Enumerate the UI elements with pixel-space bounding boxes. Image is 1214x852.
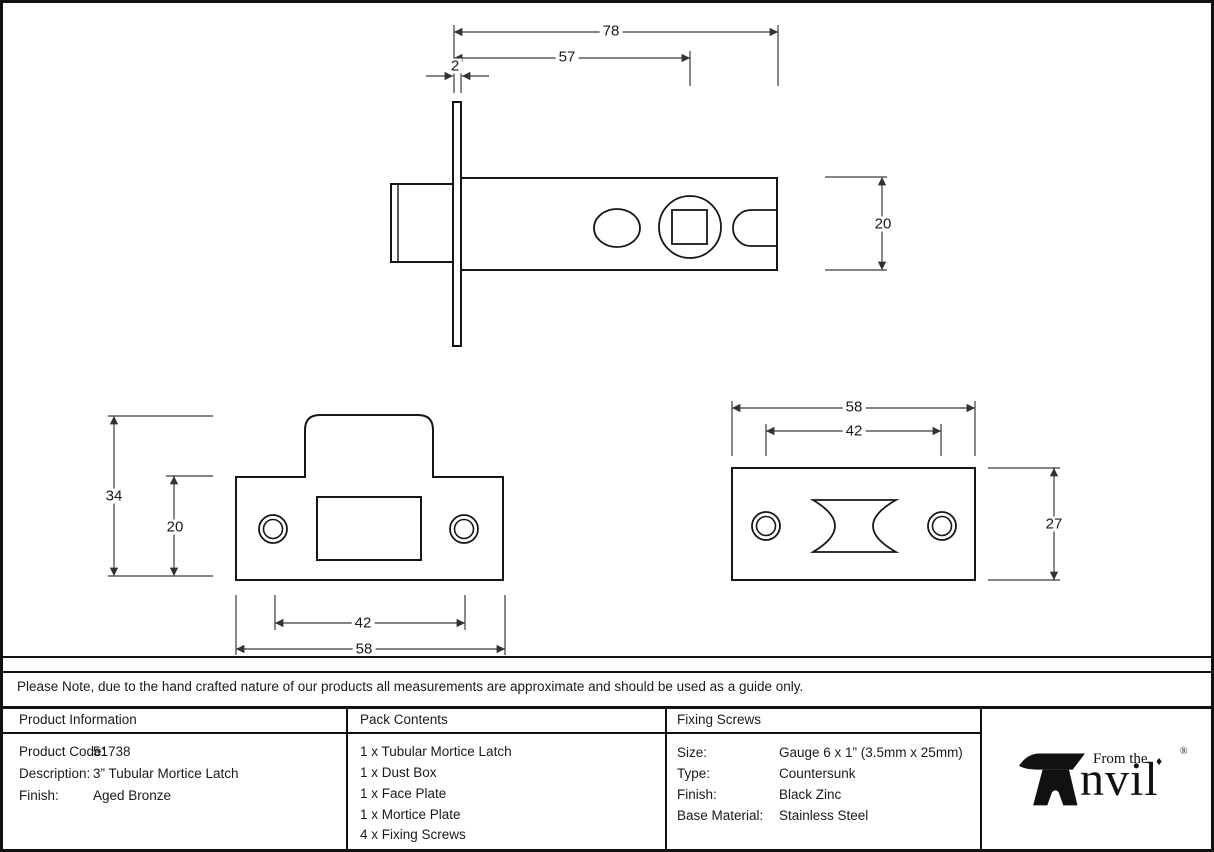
drawing-area-bottom-border xyxy=(3,656,1211,658)
dim-label-faceplate-hole-centres: 42 xyxy=(352,616,375,631)
dim-label-morticeplate-height: 27 xyxy=(1043,517,1066,532)
anvil-icon xyxy=(1019,749,1085,809)
screw-base-material-value: Stainless Steel xyxy=(779,808,868,823)
dim-label-morticeplate-width: 58 xyxy=(843,400,866,415)
dim-label-faceplate-plate-height: 20 xyxy=(164,520,187,535)
face-plate-view-drawing xyxy=(236,415,503,580)
pack-contents-item: 1 x Tubular Mortice Latch xyxy=(360,744,512,759)
pack-contents-item: 1 x Mortice Plate xyxy=(360,807,461,822)
dim-label-morticeplate-hole-centres: 42 xyxy=(843,424,866,439)
dim-label-overall-length: 78 xyxy=(600,24,623,39)
fixing-screws-title: Fixing Screws xyxy=(677,712,761,727)
dim-label-faceplate-width: 58 xyxy=(353,642,376,657)
finish-value: Aged Bronze xyxy=(93,788,171,803)
finish-label: Finish: xyxy=(19,788,59,803)
table-divider-2 xyxy=(665,706,667,852)
pack-contents-title: Pack Contents xyxy=(360,712,448,727)
screw-size-value: Gauge 6 x 1” (3.5mm x 25mm) xyxy=(779,745,963,760)
screw-type-label: Type: xyxy=(677,766,710,781)
measurement-note: Please Note, due to the hand crafted nat… xyxy=(17,679,803,694)
from-the-anvil-logo: From the nvil ♦ ® xyxy=(983,709,1209,852)
pack-contents-item: 4 x Fixing Screws xyxy=(360,827,466,842)
pack-contents-item: 1 x Face Plate xyxy=(360,786,446,801)
screw-type-value: Countersunk xyxy=(779,766,856,781)
screw-finish-value: Black Zinc xyxy=(779,787,841,802)
mortice-plate-view-drawing xyxy=(732,468,975,580)
screw-base-material-label: Base Material: xyxy=(677,808,763,823)
table-header-underline xyxy=(3,732,982,734)
screw-size-label: Size: xyxy=(677,745,707,760)
pack-contents-item: 1 x Dust Box xyxy=(360,765,437,780)
registered-trademark-icon: ® xyxy=(1180,747,1188,757)
description-label: Description: xyxy=(19,766,90,781)
technical-drawing-sheet: 78 57 2 20 34 20 42 58 58 42 27 Please N… xyxy=(0,0,1214,852)
table-divider-1 xyxy=(346,706,348,852)
logo-diamond-icon: ♦ xyxy=(1156,755,1162,767)
dim-label-latch-height: 20 xyxy=(872,217,895,232)
dim-label-backset: 57 xyxy=(556,50,579,65)
latch-side-view-drawing xyxy=(391,102,777,346)
logo-brand-text: nvil xyxy=(1080,756,1159,804)
note-box-top-border xyxy=(3,671,1211,673)
dim-label-faceplate-overall-height: 34 xyxy=(103,489,126,504)
mortice-plate-view-dimensions xyxy=(732,401,1060,580)
description-value: 3” Tubular Mortice Latch xyxy=(93,766,239,781)
drawing-canvas xyxy=(3,3,1214,658)
product-information-title: Product Information xyxy=(19,712,137,727)
latch-side-view-dimensions xyxy=(426,25,887,270)
table-divider-3 xyxy=(980,706,982,852)
product-code-value: 51738 xyxy=(93,744,131,759)
dim-label-faceplate-thickness: 2 xyxy=(448,59,462,74)
screw-finish-label: Finish: xyxy=(677,787,717,802)
face-plate-view-dimensions xyxy=(108,416,505,655)
